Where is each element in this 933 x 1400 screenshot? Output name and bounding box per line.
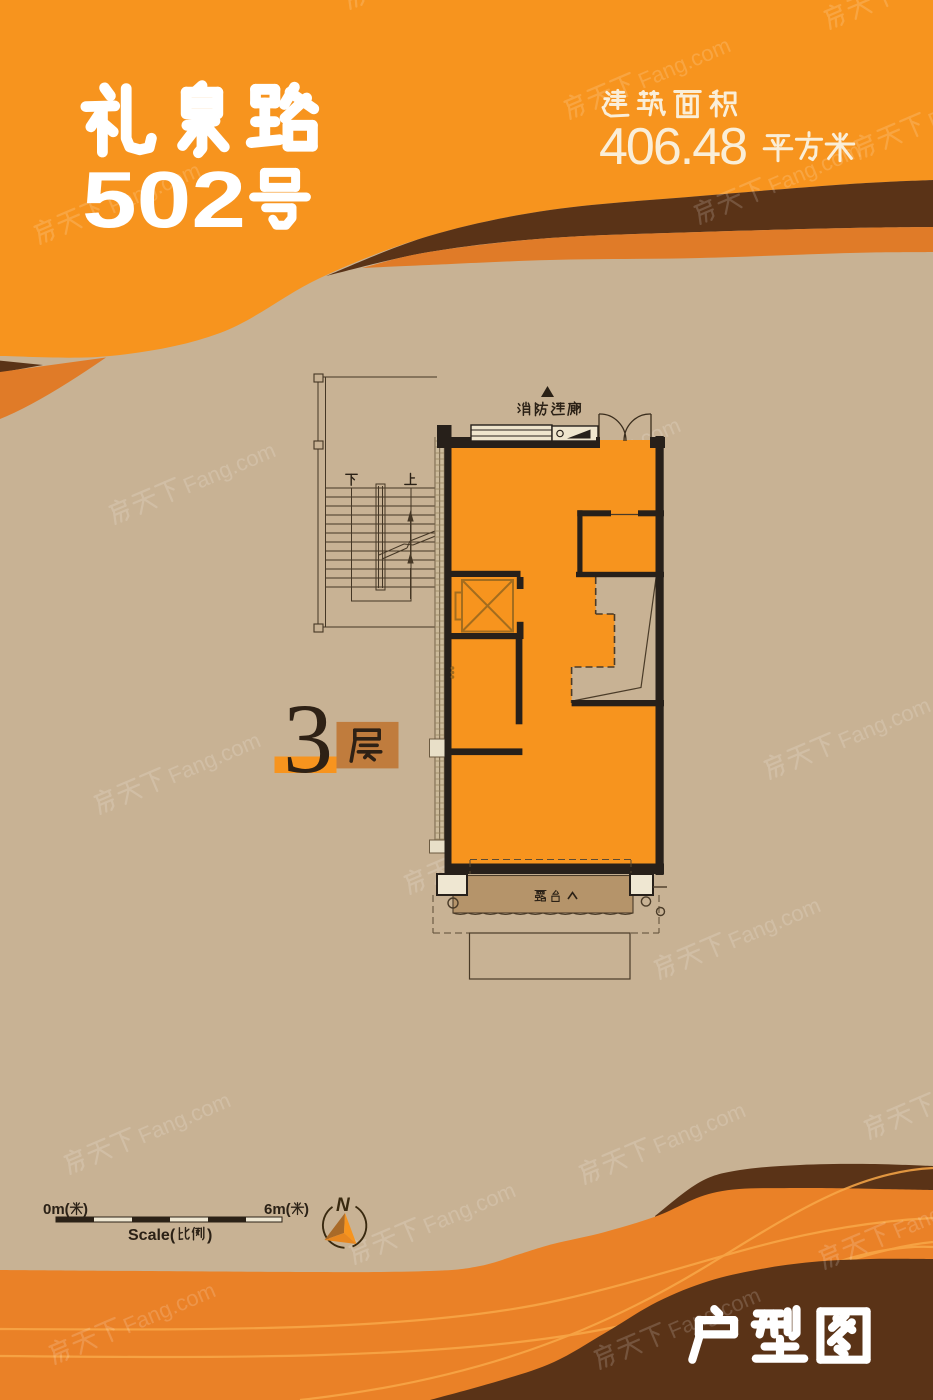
svg-text:Scale(: Scale( <box>128 1227 176 1244</box>
svg-text:3: 3 <box>283 683 333 794</box>
svg-text:6m(: 6m( <box>264 1201 291 1218</box>
svg-text:): ) <box>304 1201 309 1218</box>
svg-text:406.48: 406.48 <box>599 118 746 176</box>
svg-text:): ) <box>207 1227 212 1244</box>
svg-text:N: N <box>336 1195 351 1216</box>
svg-text:): ) <box>83 1201 88 1218</box>
svg-text:0m(: 0m( <box>43 1201 70 1218</box>
